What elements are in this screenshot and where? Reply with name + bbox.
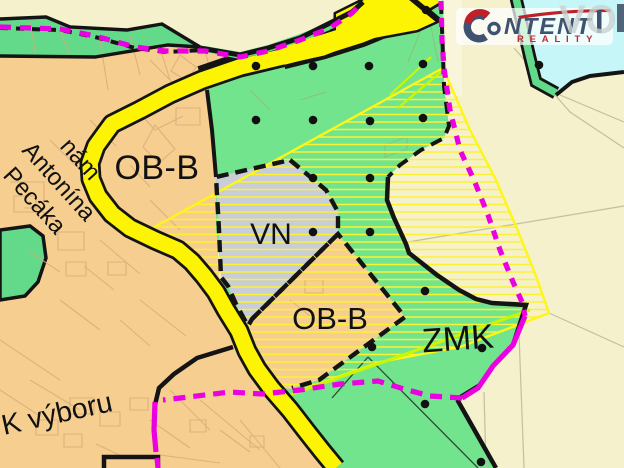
svg-text:VN: VN (250, 218, 292, 251)
svg-text:VO: VO (559, 0, 617, 42)
svg-text:ZMK: ZMK (421, 318, 496, 361)
svg-text:OB-B: OB-B (292, 301, 368, 336)
svg-text:OB-B: OB-B (114, 149, 199, 187)
